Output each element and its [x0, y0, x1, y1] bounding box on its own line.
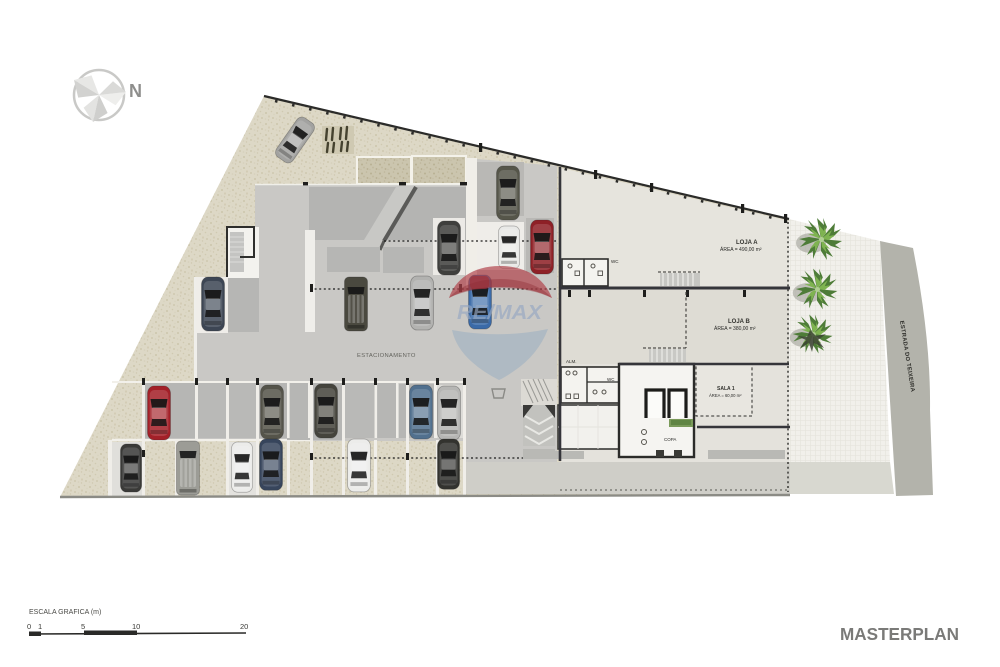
svg-text:ÁREA = 60,00 m²: ÁREA = 60,00 m²	[709, 393, 742, 398]
svg-text:ESCALA GRAFICA (m): ESCALA GRAFICA (m)	[29, 609, 101, 616]
svg-text:ALM.: ALM.	[566, 359, 577, 364]
svg-text:10: 10	[132, 622, 140, 631]
svg-text:5: 5	[81, 622, 85, 631]
svg-text:LOJA A: LOJA A	[736, 240, 758, 246]
svg-text:1: 1	[38, 622, 42, 631]
svg-text:20: 20	[240, 622, 248, 631]
svg-text:LOJA B: LOJA B	[728, 319, 750, 325]
svg-text:N: N	[129, 81, 142, 101]
svg-text:ÁREA = 380,00 m²: ÁREA = 380,00 m²	[714, 325, 756, 332]
svg-text:MASTERPLAN: MASTERPLAN	[840, 624, 959, 644]
svg-text:RE/MAX: RE/MAX	[457, 302, 544, 324]
svg-text:0: 0	[27, 622, 31, 631]
svg-text:ÁREA = 490,00 m²: ÁREA = 490,00 m²	[720, 246, 762, 253]
svg-text:SALA 1: SALA 1	[717, 386, 735, 392]
svg-text:COPA: COPA	[664, 437, 676, 442]
svg-text:WC: WC	[607, 377, 615, 382]
svg-text:WC: WC	[611, 259, 619, 264]
svg-text:ESTACIONAMENTO: ESTACIONAMENTO	[357, 353, 416, 359]
